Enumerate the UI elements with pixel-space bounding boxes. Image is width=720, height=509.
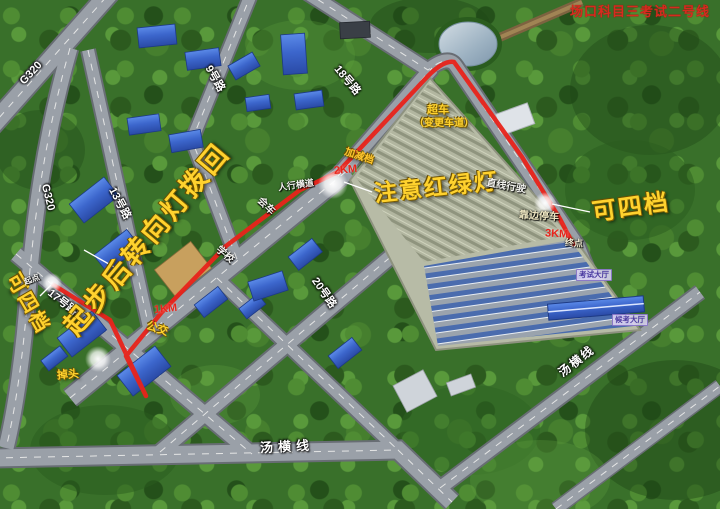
exam-hall-label: 考试大厅 [576,269,612,281]
marker-1km: 1KM [154,303,178,316]
driving-test-route-map: 场口科目三考试二号线 G320 G320 9号路 18号路 13号路 17号路 … [0,0,720,509]
u-turn-marker [85,346,111,372]
map-title: 场口科目三考试二号线 [570,5,710,18]
waiting-hall-label: 候考大厅 [612,314,648,326]
map-graphics [0,0,720,509]
route-end-label: 终点 [565,239,583,249]
maneuver-u-turn: 掉头 [57,369,80,382]
road-label-tangheng-bottom: 汤横线 [260,439,315,455]
maneuver-overtake: 超车 [427,105,449,116]
maneuver-pull-over: 靠边停车 [519,211,559,223]
marker-2km: 2KM [334,164,358,177]
maneuver-lane-change: （变更车道） [414,119,474,129]
